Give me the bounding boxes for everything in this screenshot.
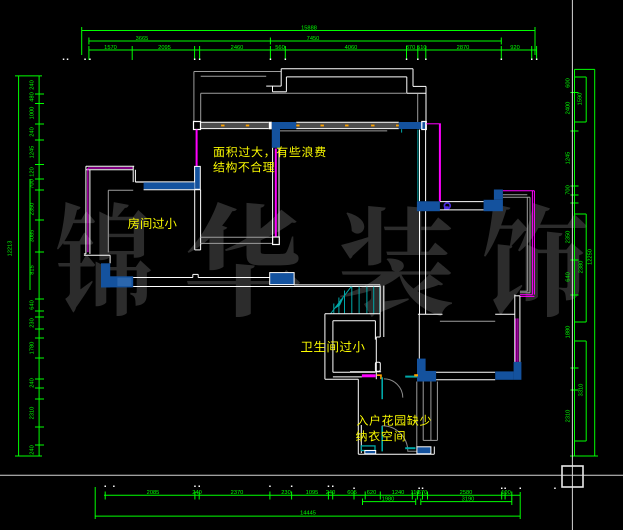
svg-text:2310: 2310	[566, 410, 572, 423]
svg-text:510: 510	[417, 45, 427, 51]
svg-text:1000: 1000	[30, 107, 36, 120]
svg-text:230: 230	[30, 318, 36, 328]
svg-text:4060: 4060	[345, 45, 358, 51]
svg-text:12250: 12250	[588, 249, 594, 265]
svg-text:1880: 1880	[566, 326, 572, 339]
svg-text:480: 480	[30, 92, 36, 102]
svg-text:560: 560	[275, 45, 285, 51]
svg-text:2350: 2350	[566, 231, 572, 244]
svg-text:3310: 3310	[579, 384, 585, 397]
svg-text:240: 240	[192, 490, 202, 496]
svg-text:240: 240	[326, 490, 336, 496]
svg-text:14445: 14445	[300, 511, 316, 517]
svg-text:100: 100	[501, 490, 511, 496]
svg-text:700: 700	[566, 185, 572, 195]
svg-text:920: 920	[510, 45, 520, 51]
svg-text:2310: 2310	[30, 407, 36, 420]
svg-text:1240: 1240	[392, 490, 405, 496]
svg-text:12213: 12213	[8, 241, 14, 257]
svg-text:640: 640	[566, 272, 572, 282]
svg-text:15888: 15888	[301, 25, 317, 31]
svg-text:1095: 1095	[306, 490, 319, 496]
svg-text:2460: 2460	[231, 45, 244, 51]
svg-text:1570: 1570	[104, 45, 117, 51]
svg-text:2095: 2095	[158, 45, 171, 51]
svg-text:2400: 2400	[566, 102, 572, 115]
svg-text:3665: 3665	[136, 36, 149, 42]
svg-text:370: 370	[406, 45, 416, 51]
svg-text:230: 230	[281, 490, 291, 496]
svg-text:120: 120	[30, 167, 36, 177]
svg-text:1590: 1590	[578, 93, 584, 106]
svg-text:640: 640	[30, 300, 36, 310]
svg-text:2380: 2380	[579, 261, 585, 274]
svg-text:2580: 2580	[460, 490, 473, 496]
svg-text:815: 815	[30, 265, 36, 275]
svg-text:600: 600	[566, 78, 572, 88]
svg-text:7450: 7450	[307, 36, 320, 42]
svg-text:1245: 1245	[566, 152, 572, 165]
svg-text:240: 240	[30, 127, 36, 137]
svg-text:240: 240	[30, 80, 36, 90]
svg-text:3190: 3190	[462, 496, 475, 502]
svg-text:240: 240	[30, 378, 36, 388]
svg-text:2870: 2870	[457, 45, 470, 51]
svg-text:3085: 3085	[30, 230, 36, 243]
svg-text:1780: 1780	[30, 342, 36, 355]
svg-text:2350: 2350	[30, 203, 36, 216]
svg-text:240: 240	[30, 445, 36, 455]
svg-text:2370: 2370	[231, 490, 244, 496]
svg-text:620: 620	[367, 490, 377, 496]
svg-text:605: 605	[347, 490, 357, 496]
svg-text:1245: 1245	[30, 146, 36, 159]
svg-text:670: 670	[418, 490, 428, 496]
svg-text:2085: 2085	[147, 490, 160, 496]
svg-text:700: 700	[30, 179, 36, 189]
svg-text:1980: 1980	[382, 496, 395, 502]
